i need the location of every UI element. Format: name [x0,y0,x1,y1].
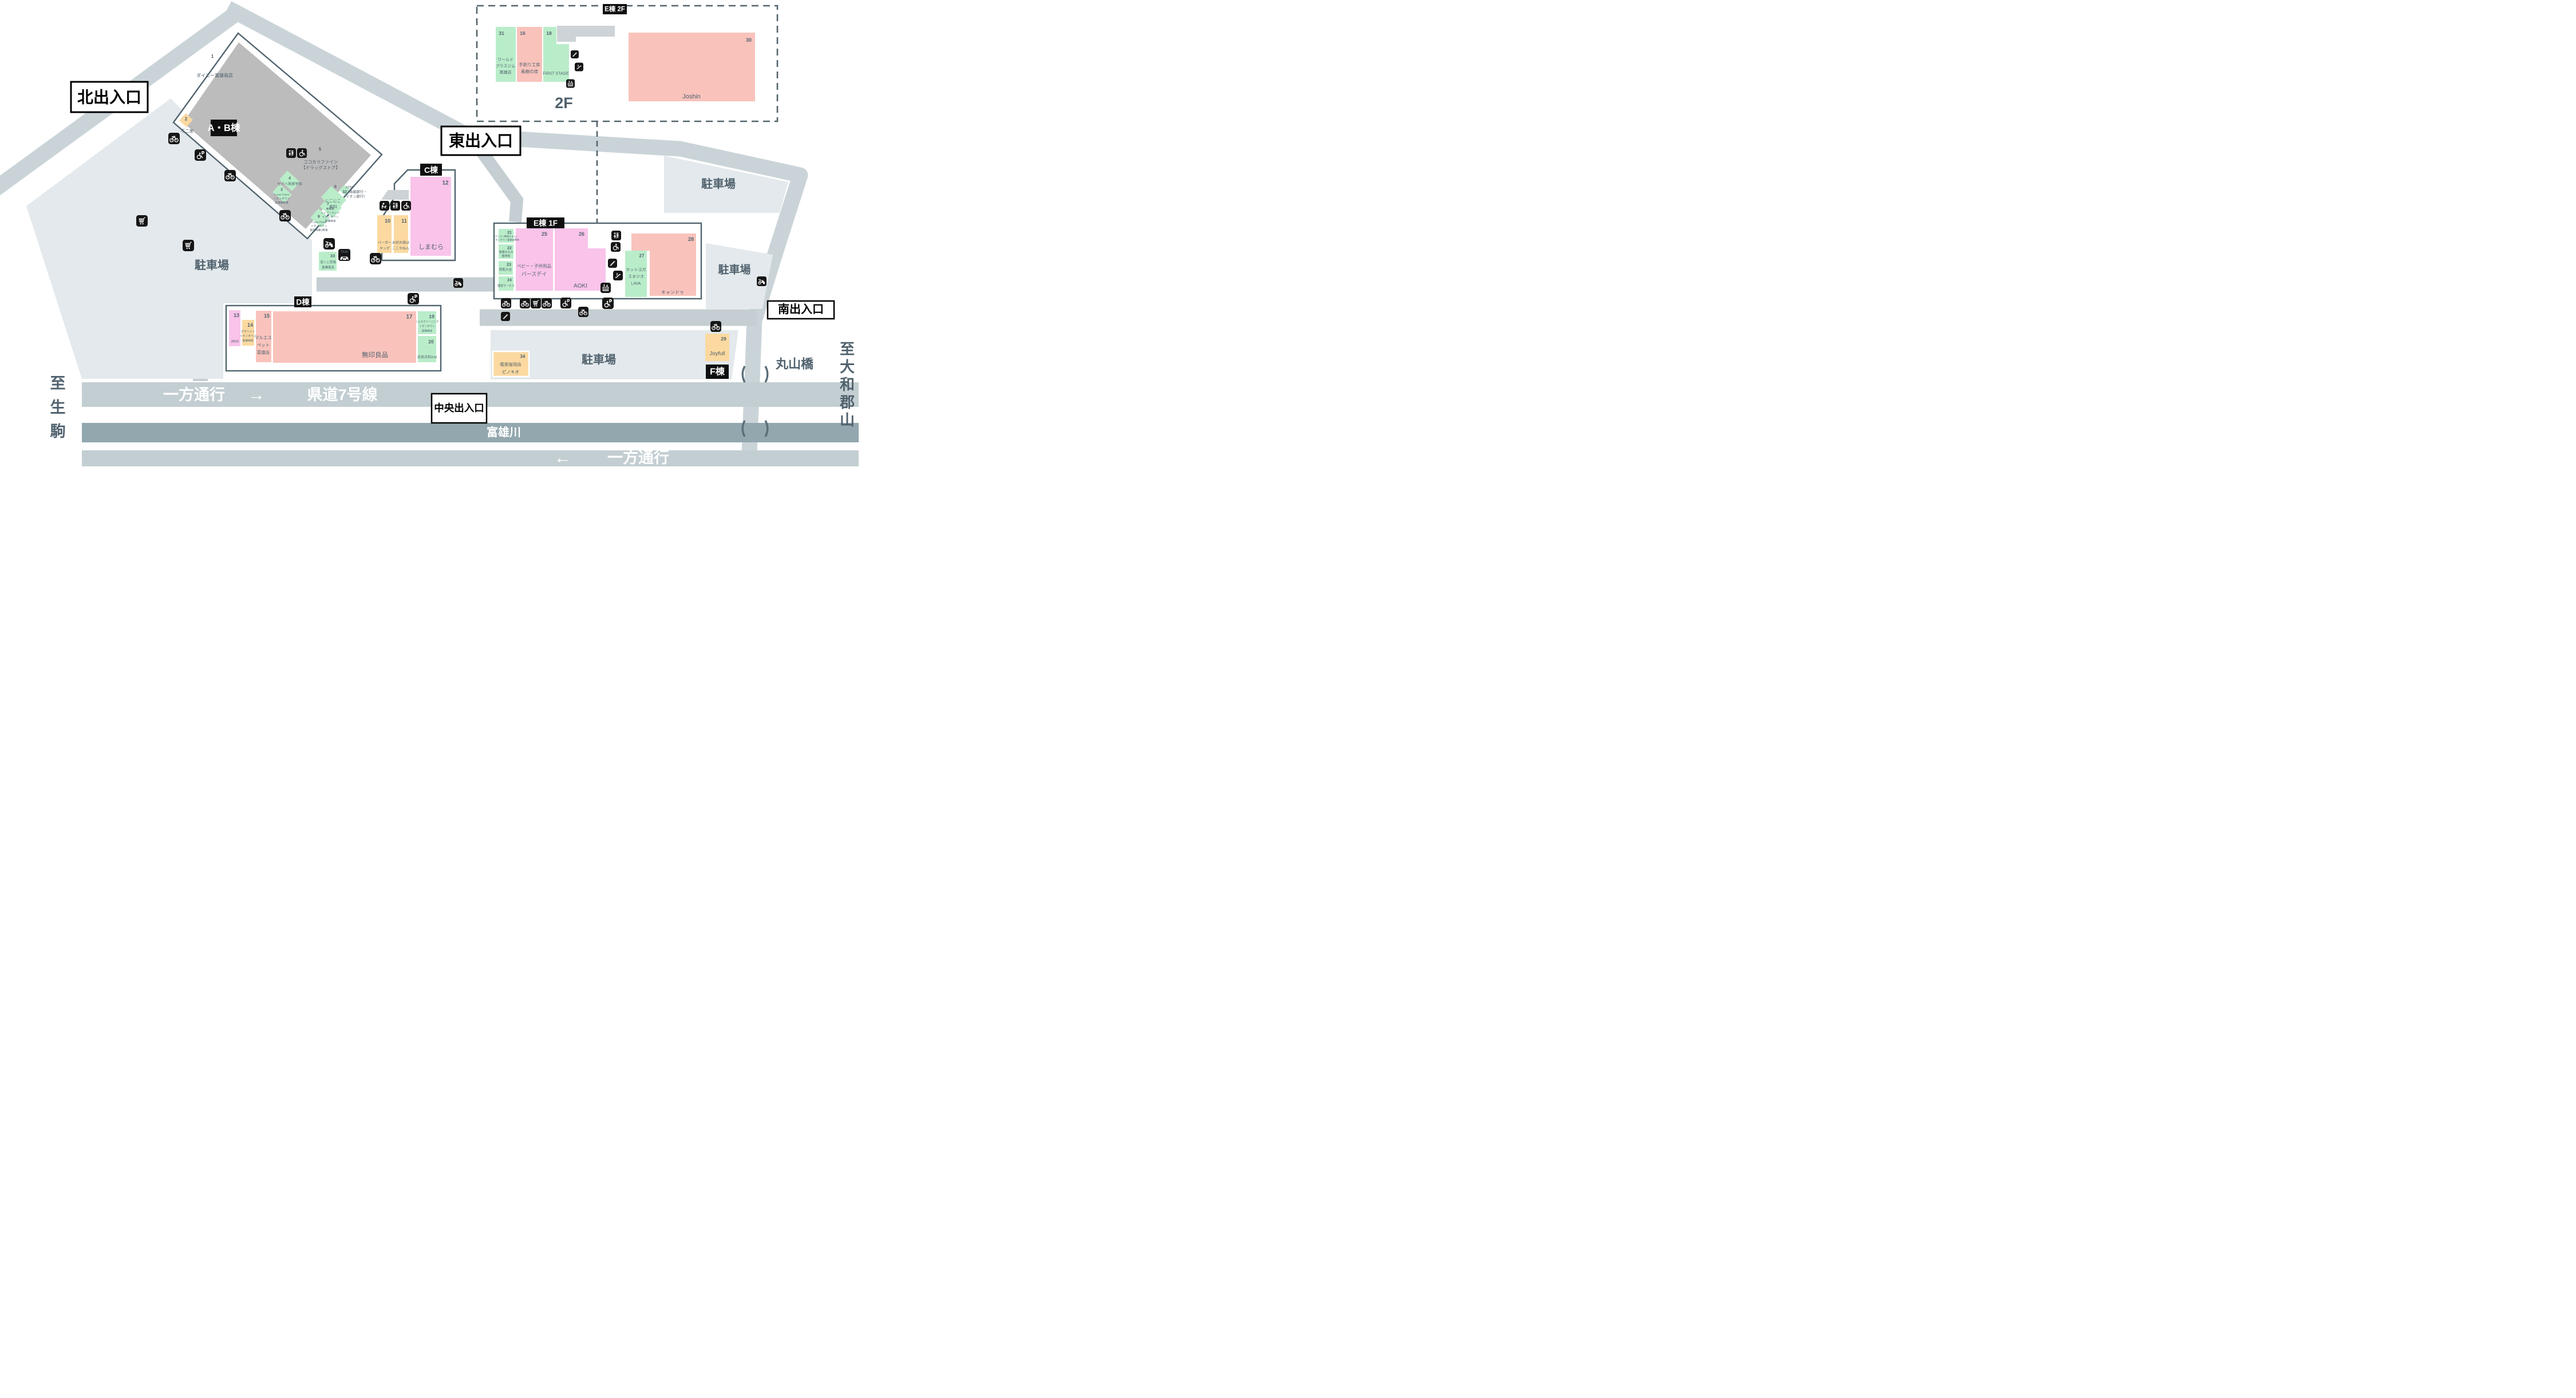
to-ikoma-char: 生 [50,399,66,416]
shopping-cart-icon [183,240,194,251]
shop-14-name: ピザハット [241,330,255,334]
parking-west-label: 駐車場 [195,258,229,272]
bicycle-icon [542,298,552,308]
to-koriyama-char: 郡 [839,394,855,411]
shop-6-num: 6 [318,215,320,219]
shop-2-name: 不二家 [181,128,194,134]
shop-21-num: 21 [507,231,512,235]
taxi-icon-text: TAXI [341,251,349,254]
shop-1-name: ダイエー富雄南店 [196,73,233,78]
shop-10-name: キング [380,246,390,251]
shop-22-name: 富雄みなみ [499,250,513,254]
baby-room-icon [380,201,389,211]
moped-icon [323,238,335,249]
e1f-title-text: E棟 1F [534,219,558,228]
map-canvas: 駐車場 駐車場 駐車場 駐車場 一方通行 → 県道7号線 富雄川 ← 一方通行 … [0,0,859,466]
shop-7-num: 7 [327,203,329,207]
shop-11-name: お好み焼は [392,240,409,245]
shop-20-name: 奈良日和2nd [417,355,437,359]
shop-16-name: 手創り工房 [519,62,540,68]
toilet-icon [611,231,621,240]
shop-11-name: ここやねん [392,246,409,251]
shop-30-name: Joshin [682,93,701,100]
shop-6-name: 富雄南第2教室 [310,228,328,232]
floor2-label: 2F [555,94,573,112]
c-building: 12 10 11 しまむら バーガー キング お好み焼は ここやねん C棟 [377,164,455,260]
ab-title-text: A・B棟 [208,122,240,133]
one-way-left-arrow: ← [554,449,571,467]
shop-7-name: イオンタウン [322,215,339,219]
shop-5-name: 【ドラッグストア】 [301,165,340,171]
shop-5-name: ココカラファイン [303,160,338,165]
elevator-icon [600,283,611,293]
shop-13-name: JINS [231,340,239,344]
bicycle-icon [168,133,180,144]
shop-22-num: 22 [507,247,512,251]
parking-south-label: 駐車場 [582,353,616,366]
escalator-icon [613,271,623,280]
shop-20-num: 20 [428,339,434,344]
shop-32-name: イオン銀行） [346,195,367,199]
shop-13-num: 13 [234,312,239,318]
shop-18-num: 18 [546,30,552,36]
north-entrance-text: 北出入口 [77,89,141,106]
d-building: 13 14 15 17 19 20 JINS ピザハット イオンタウン 富雄南店… [226,293,441,371]
road-south-band [82,450,859,466]
elevator-icon [566,80,575,88]
to-koriyama-char: 山 [840,411,855,429]
shop-14-name: イオンタウン [240,334,256,338]
bicycle-icon [224,170,236,181]
e1f-building: 21 22 23 24 25 26 27 28 パソコン教室かるん♪ イオンタウ… [493,217,701,309]
shopping-cart-icon [136,215,148,227]
shop-34-name: ピノキオ [502,370,519,375]
one-way-left-label: 一方通行 [607,449,669,466]
bicycle-icon [578,307,588,317]
shop-33-num: 33 [330,254,335,259]
shop-30-num: 30 [746,37,752,43]
east-entrance-text: 東出入口 [449,132,513,150]
stairs-icon [608,259,617,268]
shop-6-name: イオンタウン [311,224,327,228]
shop-8-num: 8 [334,185,337,189]
moped-icon [453,278,463,288]
shop-27-name: LAVA [631,282,641,286]
shop-10-num: 10 [385,218,390,224]
shop-16-num: 16 [520,30,526,36]
river-label: 富雄川 [487,425,521,439]
parking-east [706,243,773,309]
east-entrance-label: 東出入口 [441,126,520,155]
shop-2-num: 2 [185,117,188,122]
one-way-right-label: 一方通行 [163,386,225,403]
shop-12-name: しまむら [418,243,444,251]
wheelchair-icon [611,242,621,252]
to-ikoma-label: 至 生 駒 [50,375,66,440]
shop-21-name: イオンタウン富雄南教室 [493,238,519,242]
shop-31-name: ワールド [497,58,513,62]
shop-25-name: ベビー・子供用品 [517,263,551,269]
shop-12-num: 12 [442,180,449,187]
shop-4-num: 4 [289,177,291,181]
mall-map: 駐車場 駐車場 駐車場 駐車場 一方通行 → 県道7号線 富雄川 ← 一方通行 … [0,0,859,466]
shop-30-block [629,33,755,101]
bridge-label: 丸山橋 [775,357,814,371]
shop-7-name: イレブンカット [321,211,340,215]
e2f-title-text: E棟 2F [605,5,625,13]
d-title-text: D棟 [296,298,310,307]
shop-27-num: 27 [639,254,645,259]
shop-33-name: 富雄南店 [322,265,335,270]
to-koriyama-char: 大 [840,358,855,375]
e2f-title: E棟 2F [603,4,627,14]
shop-32-name: （南都銀行・ [346,190,367,195]
shop-3-name: 富雄南教室 [275,201,289,205]
route7-label: 県道7号線 [307,386,377,403]
shop-31-num: 31 [499,30,504,36]
shop-19-num: 19 [429,314,434,319]
shop-17-num: 17 [406,314,413,320]
shop-27-name: ホットヨガ [626,267,646,272]
shop-19-name: イオンタウン [419,324,435,328]
shop-6-name: I Love Piano [311,221,327,224]
shop-3-num: 3 [280,188,283,192]
shop-10-name: バーガー [378,240,392,245]
wheelchair-parking-icon [602,298,614,309]
shop-4-name: セイハ英語学院 [277,182,302,187]
shop-7-name: 美容室 [326,207,335,211]
shop-28-num: 28 [688,236,694,242]
shop-26-num: 26 [579,231,584,237]
shop-22-name: 整骨院 [501,254,510,258]
shop-33-name: 宝くじ売場 [320,260,336,264]
f-title: F棟 [706,365,729,379]
bicycle-icon [710,321,721,332]
one-way-right-arrow: → [248,386,265,405]
shop-24-num: 24 [507,279,512,283]
shop-19-name: ノムラクリーニング [415,320,439,324]
lottery-area: 33 宝くじ売場 富雄南店 TAXI [319,238,381,271]
bicycle-icon [520,298,530,308]
wheelchair-parking-icon [560,298,571,308]
shop-27-name: スタジオ [628,274,644,279]
shop-15-name: 富雄店 [257,350,270,355]
shop-29-num: 29 [721,336,726,342]
stairs-icon [571,50,579,58]
shop-17-block [273,311,416,363]
shop-3-name: I Love Piano [274,193,290,197]
shop-23-name: 買取大吉 [499,267,512,272]
bicycle-icon [370,253,381,264]
shop-15-name: ペット [257,343,270,348]
ab-title: A・B棟 [208,120,240,136]
shop-14-name: 富雄南店 [242,339,253,343]
shop-19-name: 富雄南店 [422,329,433,333]
moped-icon [757,276,767,286]
shop-11-num: 11 [401,218,407,224]
shop-17-name: 無印良品 [362,351,388,359]
c-gray-area [381,190,409,200]
c-title-text: C棟 [424,165,438,175]
shop-34-name: 喫茶珈琲店 [500,362,521,367]
shop-23-num: 23 [507,263,511,267]
wheelchair-parking-icon [408,293,419,304]
wheelchair-icon [401,201,411,211]
shop-26-name: AOKI [574,283,587,290]
shop-32-name: ATM [346,186,353,190]
toilet-icon [390,201,400,211]
shop-3-name: イオンタウン [274,197,290,201]
shop-5-num: 5 [319,147,322,152]
bicycle-icon [279,210,291,221]
shop-18-name: FIRST STAGE [543,72,569,76]
shop-34-num: 34 [520,354,526,359]
stairs-icon [501,312,510,321]
shop-21-name: パソコン教室かるん♪ [495,235,517,239]
to-ikoma-char: 駒 [50,423,66,440]
taxi-icon: TAXI [338,249,350,261]
shop-31-name: 富雄店 [500,70,512,75]
shopping-cart-icon [531,298,541,308]
e1f-title: E棟 1F [527,217,564,228]
wheelchair-icon [297,148,307,158]
central-entrance-label: 中央出入口 [432,394,487,423]
to-koriyama-label: 至 大 和 郡 山 [839,340,855,429]
shop-15-num: 15 [264,313,270,319]
south-entrance-text: 南出入口 [778,303,824,316]
shop-25-num: 25 [542,231,547,237]
shop-31-name: プラスジム [496,64,516,69]
d-title: D棟 [294,296,311,307]
south-entrance-label: 南出入口 [768,301,834,319]
shop-29-name: Joyfull [710,351,725,357]
bicycle-icon [501,298,511,308]
shop-25-block [516,228,553,291]
wheelchair-parking-icon [195,149,206,161]
toilet-icon [286,148,296,158]
parking-east-label: 駐車場 [718,263,750,276]
f-title-text: F棟 [710,366,725,377]
shop-25-name: バースデイ [521,271,547,277]
to-koriyama-char: 和 [840,376,855,393]
c-title: C棟 [420,164,442,176]
north-entrance-label: 北出入口 [71,82,148,112]
shop-15-name: マルエス [255,335,272,340]
parking-northeast-label: 駐車場 [701,177,736,191]
to-ikoma-char: 至 [50,375,66,392]
escalator-icon [575,63,583,72]
shop-16-name: 風樹の塔 [521,69,538,74]
shop-24-name: 理容サービス [497,284,515,288]
to-koriyama-char: 至 [840,340,855,358]
central-entrance-text: 中央出入口 [434,402,484,414]
shop-14-num: 14 [247,322,253,328]
shop-1-num: 1 [211,53,214,59]
shop-28-name: キャンドゥ [661,290,684,295]
